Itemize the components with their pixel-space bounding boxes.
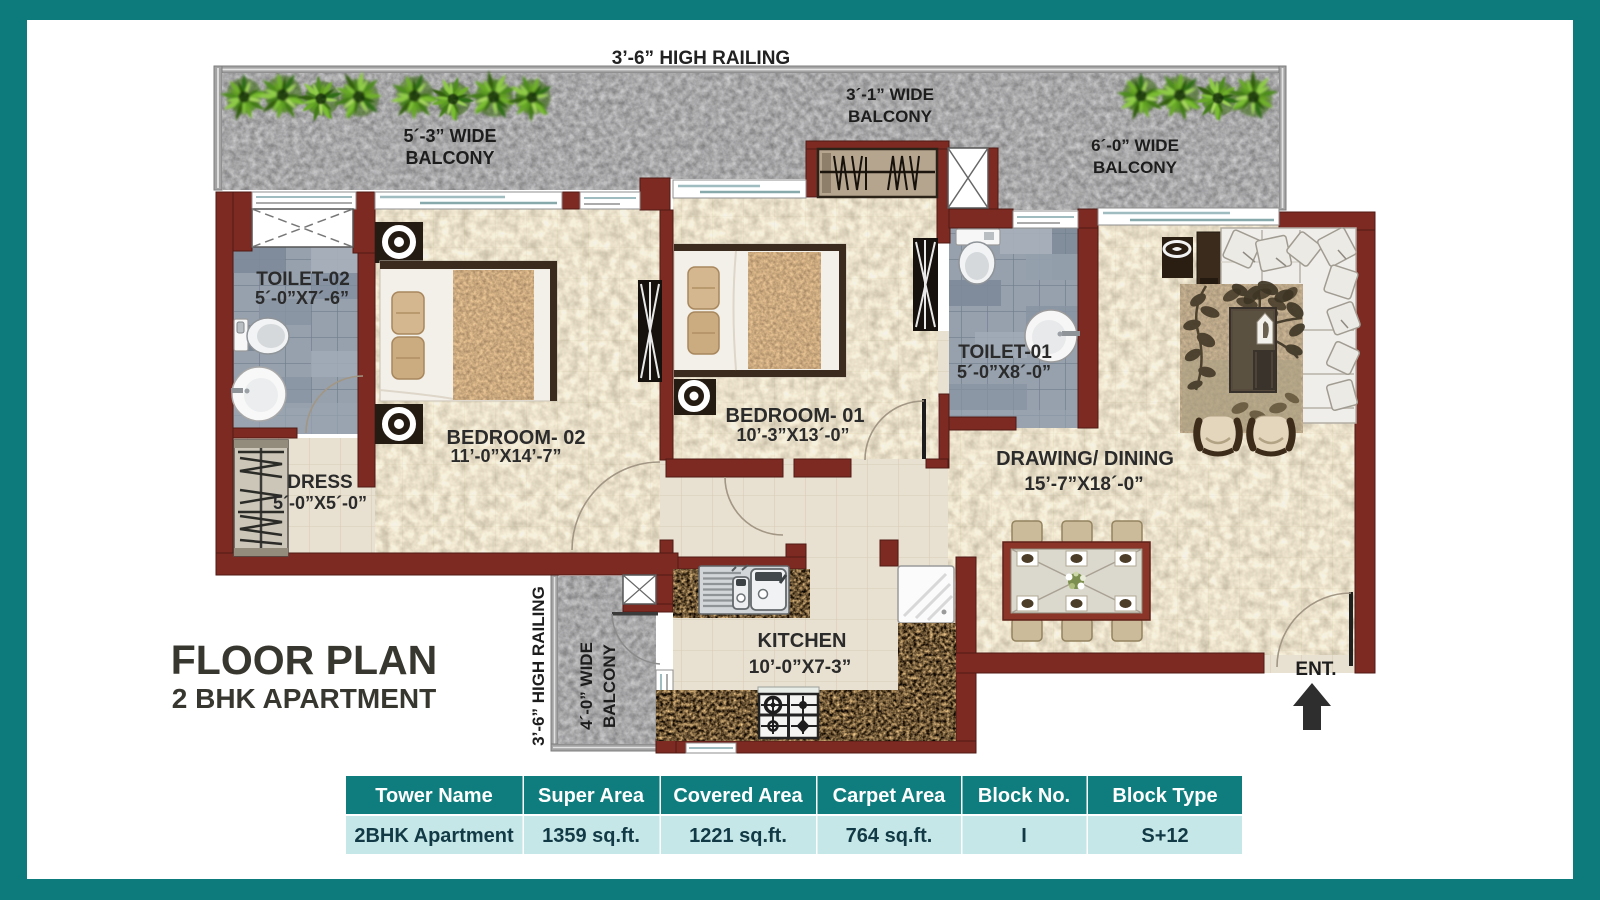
svg-text:Super Area: Super Area xyxy=(538,785,645,807)
svg-text:BALCONY: BALCONY xyxy=(848,107,933,126)
svg-text:2 BHK APARTMENT: 2 BHK APARTMENT xyxy=(172,683,436,714)
svg-text:1221 sq.ft.: 1221 sq.ft. xyxy=(689,825,787,847)
svg-text:Covered Area: Covered Area xyxy=(673,785,803,807)
svg-text:5´-0”X8´-0”: 5´-0”X8´-0” xyxy=(957,362,1051,382)
svg-text:Carpet Area: Carpet Area xyxy=(833,785,947,807)
svg-text:BALCONY: BALCONY xyxy=(1093,158,1178,177)
svg-text:Block No.: Block No. xyxy=(978,785,1070,807)
svg-text:5´-0”X7´-6”: 5´-0”X7´-6” xyxy=(255,288,349,308)
svg-text:5´-3” WIDE: 5´-3” WIDE xyxy=(403,126,496,146)
svg-text:Tower Name: Tower Name xyxy=(375,785,492,807)
svg-text:1359 sq.ft.: 1359 sq.ft. xyxy=(542,825,640,847)
svg-text:10’-0”X7-3”: 10’-0”X7-3” xyxy=(749,657,851,678)
svg-text:BALCONY: BALCONY xyxy=(600,643,619,728)
svg-text:3’-6” HIGH RAILING: 3’-6” HIGH RAILING xyxy=(529,586,548,746)
svg-text:6´-0” WIDE: 6´-0” WIDE xyxy=(1091,136,1179,155)
svg-text:5´-0”X5´-0”: 5´-0”X5´-0” xyxy=(273,493,367,513)
svg-text:DRESS: DRESS xyxy=(287,472,352,493)
svg-text:3´-1” WIDE: 3´-1” WIDE xyxy=(846,85,934,104)
svg-text:3’-6” HIGH RAILING: 3’-6” HIGH RAILING xyxy=(612,48,790,69)
svg-text:ENT.: ENT. xyxy=(1295,659,1336,680)
svg-text:S+12: S+12 xyxy=(1141,825,1188,847)
svg-text:15’-7”X18´-0”: 15’-7”X18´-0” xyxy=(1024,474,1143,495)
svg-text:FLOOR PLAN: FLOOR PLAN xyxy=(171,637,437,683)
svg-text:Block Type: Block Type xyxy=(1112,785,1217,807)
svg-text:11’-0”X14’-7”: 11’-0”X14’-7” xyxy=(450,446,561,466)
svg-text:TOILET-02: TOILET-02 xyxy=(256,269,350,290)
svg-text:BALCONY: BALCONY xyxy=(406,148,495,168)
svg-text:KITCHEN: KITCHEN xyxy=(758,630,847,652)
svg-text:4´-0” WIDE: 4´-0” WIDE xyxy=(577,642,596,730)
svg-text:BEDROOM- 01: BEDROOM- 01 xyxy=(726,405,865,427)
svg-text:2BHK Apartment: 2BHK Apartment xyxy=(354,825,514,847)
svg-text:TOILET-01: TOILET-01 xyxy=(958,342,1052,363)
svg-text:764 sq.ft.: 764 sq.ft. xyxy=(846,825,933,847)
svg-text:I: I xyxy=(1021,825,1027,847)
svg-text:10’-3”X13´-0”: 10’-3”X13´-0” xyxy=(736,425,849,445)
svg-text:DRAWING/ DINING: DRAWING/ DINING xyxy=(996,448,1174,470)
